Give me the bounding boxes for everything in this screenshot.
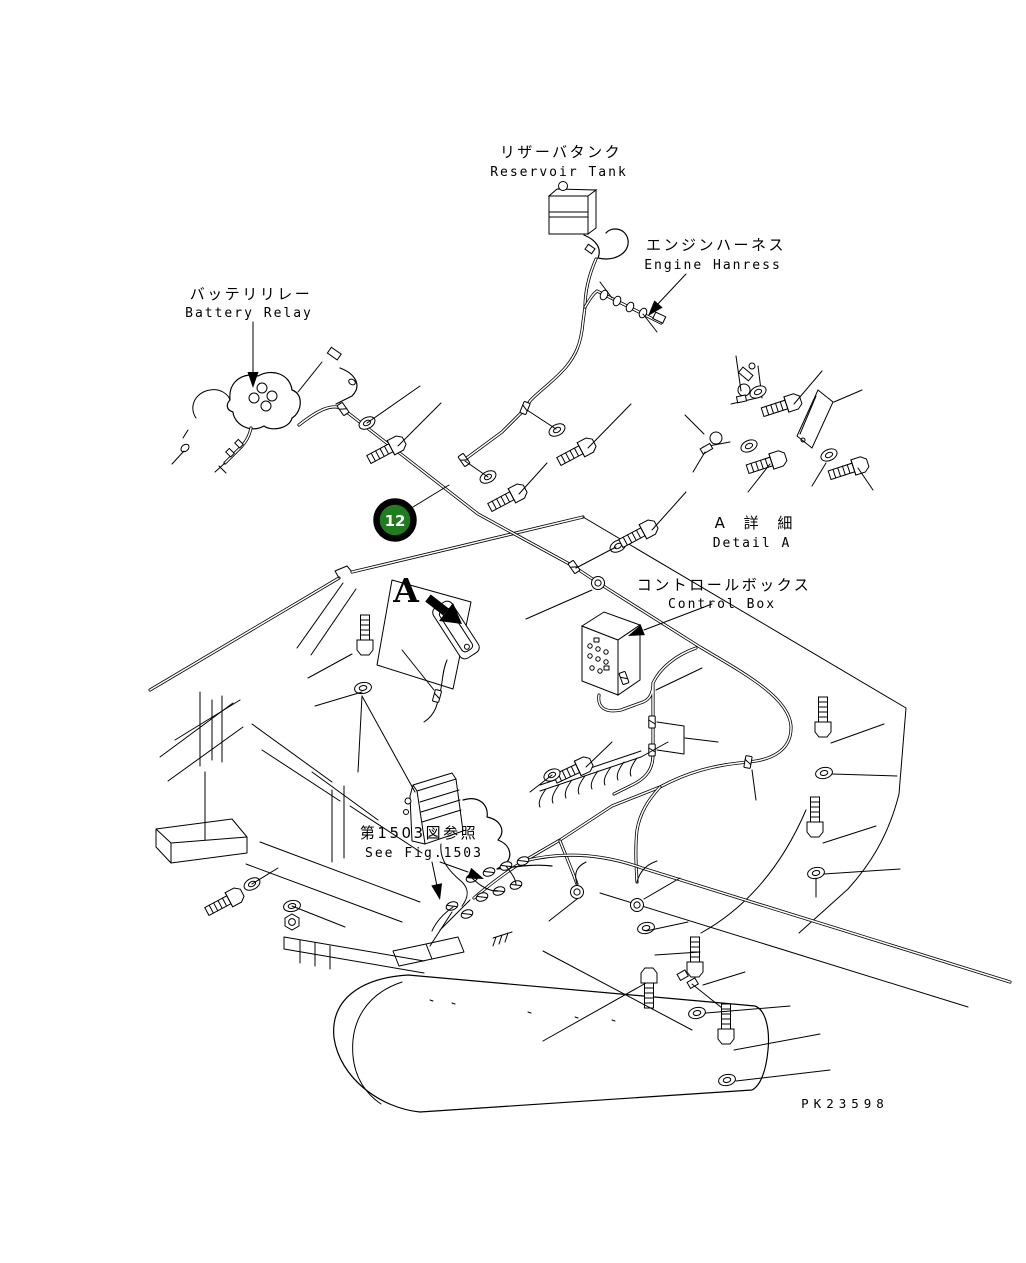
control-box-label-jp: コントロールボックス bbox=[637, 576, 812, 594]
engine-harness-label-en: Engine Hanress bbox=[644, 258, 782, 273]
callout-12-number: 12 bbox=[385, 512, 406, 530]
lamp-unit-drawing bbox=[362, 696, 552, 906]
parts-diagram-page: A bbox=[0, 0, 1026, 1263]
battery-relay-arrow-icon bbox=[248, 372, 259, 388]
battery-relay-drawing bbox=[172, 347, 357, 473]
labels: リザーバタンク Reservoir Tank エンジンハーネス Engine H… bbox=[185, 143, 889, 1111]
wiring-harness-diagram: A bbox=[0, 0, 1026, 1263]
battery-relay-label-jp: バッテリリレー bbox=[190, 285, 313, 303]
detail-a-label-en: Detail A bbox=[713, 536, 792, 551]
callout-12[interactable]: 12 bbox=[377, 485, 450, 539]
part-code: PK23598 bbox=[801, 1096, 889, 1111]
control-box-label-en: Control Box bbox=[668, 597, 776, 612]
reservoir-tank-drawing bbox=[549, 182, 628, 259]
reservoir-tank-label-jp: リザーバタンク bbox=[500, 143, 622, 161]
see-fig-arrow1-icon bbox=[431, 883, 445, 901]
detail-a-parts bbox=[685, 356, 873, 492]
right-side-fasteners bbox=[807, 697, 900, 897]
view-a-marker: A bbox=[392, 571, 462, 624]
see-fig-label-jp: 第1503図参照 bbox=[360, 824, 478, 842]
panel-connector-drawing bbox=[402, 599, 482, 722]
view-a-letter: A bbox=[392, 571, 419, 610]
crawler-track bbox=[334, 975, 769, 1112]
battery-relay-label-en: Battery Relay bbox=[185, 306, 313, 321]
engine-harness-label-jp: エンジンハーネス bbox=[646, 236, 786, 254]
reservoir-tank-label-en: Reservoir Tank bbox=[490, 165, 628, 180]
detail-a-label-jp: A 詳 細 bbox=[715, 514, 800, 532]
control-box-drawing bbox=[582, 612, 718, 794]
see-fig-label-en: See Fig.1503 bbox=[365, 846, 483, 861]
